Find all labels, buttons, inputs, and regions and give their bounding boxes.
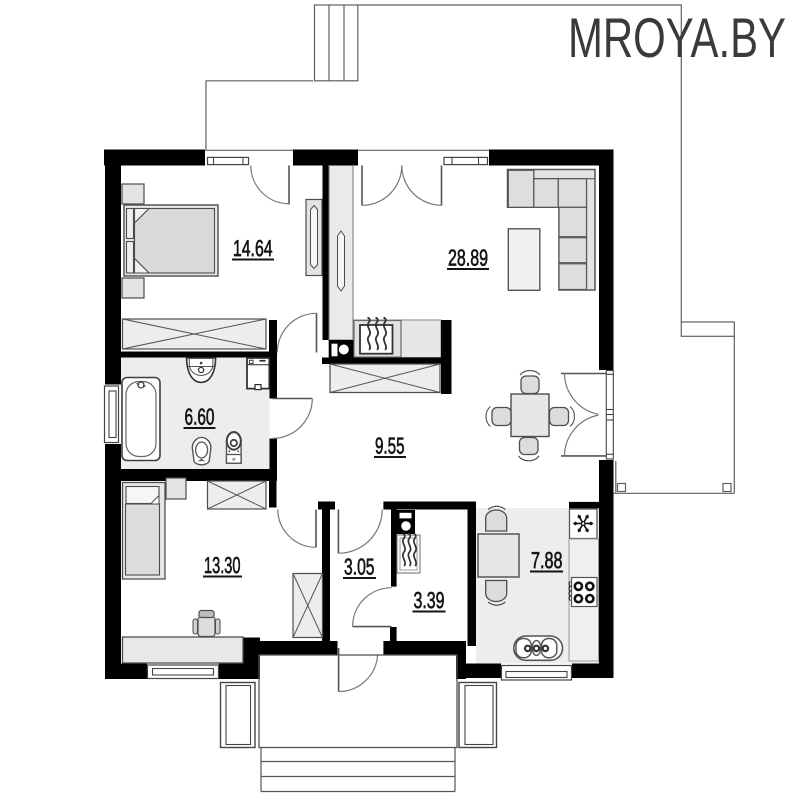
svg-text:28.89: 28.89 — [448, 245, 488, 271]
svg-text:MROYA.BY: MROYA.BY — [568, 6, 786, 69]
svg-text:14.64: 14.64 — [233, 235, 273, 261]
svg-text:3.39: 3.39 — [414, 587, 445, 613]
svg-text:3.05: 3.05 — [344, 554, 375, 580]
svg-text:9.55: 9.55 — [375, 433, 405, 459]
svg-text:6.60: 6.60 — [185, 404, 215, 430]
svg-text:13.30: 13.30 — [204, 552, 241, 578]
svg-text:7.88: 7.88 — [531, 547, 563, 573]
